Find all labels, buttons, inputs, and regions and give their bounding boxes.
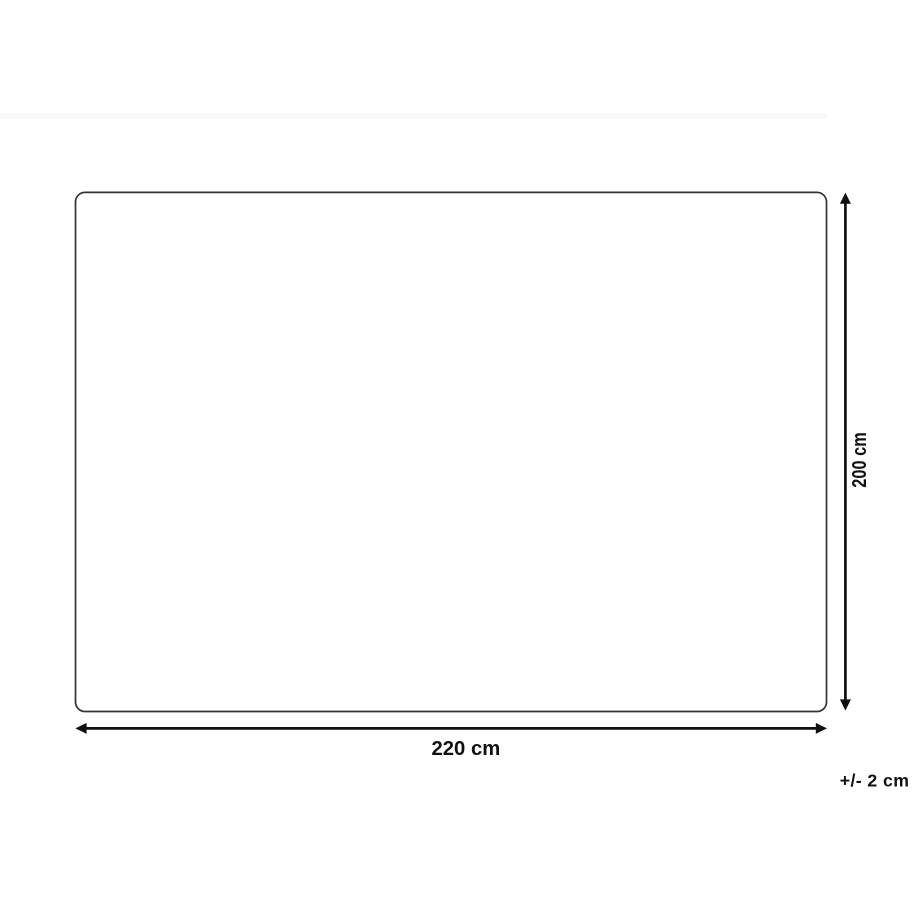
svg-text:220 cm: 220 cm xyxy=(432,738,501,760)
svg-text:+/- 2 cm: +/- 2 cm xyxy=(840,771,909,791)
svg-text:200 cm: 200 cm xyxy=(849,432,871,488)
